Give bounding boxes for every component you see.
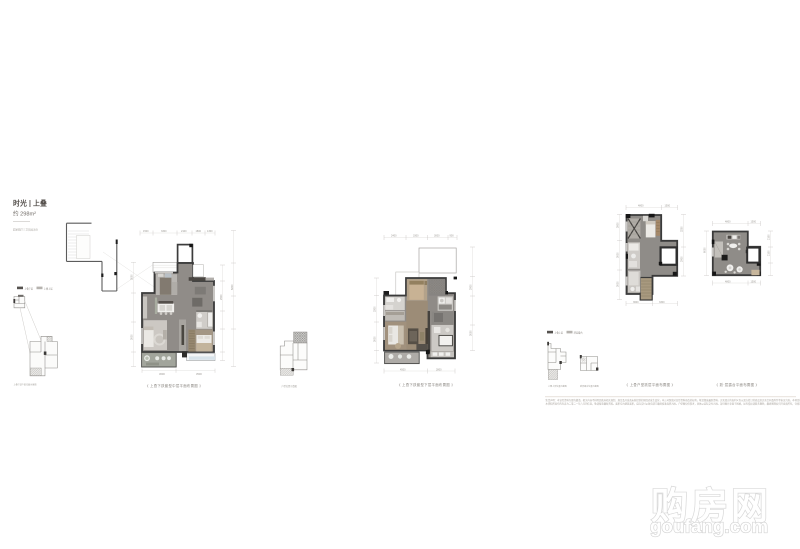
svg-text:约 298m²: 约 298m² bbox=[13, 210, 36, 218]
svg-text:3050: 3050 bbox=[131, 274, 134, 280]
svg-text:2800: 2800 bbox=[436, 368, 442, 371]
svg-text:3300: 3300 bbox=[374, 306, 377, 312]
svg-text:3050: 3050 bbox=[470, 330, 473, 336]
svg-text:《 上叠下跃套型中层平面布置图 》: 《 上叠下跃套型中层平面布置图 》 bbox=[145, 383, 203, 388]
svg-text:3300: 3300 bbox=[413, 235, 419, 238]
svg-text:1500: 1500 bbox=[751, 221, 757, 224]
svg-text:3500: 3500 bbox=[196, 372, 202, 376]
svg-text:3300: 3300 bbox=[161, 230, 167, 233]
svg-text:时光 | 上叠: 时光 | 上叠 bbox=[13, 199, 47, 208]
svg-text:3300: 3300 bbox=[659, 301, 665, 304]
svg-text:3000: 3000 bbox=[617, 252, 620, 258]
svg-text:2900: 2900 bbox=[681, 256, 684, 262]
svg-text:3600: 3600 bbox=[159, 372, 165, 376]
svg-text:《 上叠户型跃层平面布置图 》: 《 上叠户型跃层平面布置图 》 bbox=[625, 382, 675, 387]
svg-text:goufang.com: goufang.com bbox=[650, 516, 768, 537]
svg-text:2400: 2400 bbox=[391, 235, 397, 238]
svg-text:3000: 3000 bbox=[374, 336, 377, 342]
svg-text:3600: 3600 bbox=[633, 301, 639, 304]
svg-text:1300: 1300 bbox=[207, 230, 213, 233]
svg-text:4800: 4800 bbox=[638, 205, 644, 208]
svg-text:6050: 6050 bbox=[704, 247, 707, 253]
svg-text:四室两厅三卫花园洋房: 四室两厅三卫花园洋房 bbox=[13, 228, 39, 232]
svg-text:《 跃·层露台平面布置图 》: 《 跃·层露台平面布置图 》 bbox=[715, 382, 760, 387]
svg-text:《 上叠下跃套型下层平面布置图 》: 《 上叠下跃套型下层平面布置图 》 bbox=[397, 382, 455, 387]
svg-text:1800: 1800 bbox=[196, 230, 202, 233]
svg-text:900: 900 bbox=[450, 235, 455, 238]
svg-text:2600: 2600 bbox=[617, 222, 620, 228]
svg-text:3000: 3000 bbox=[131, 334, 134, 340]
svg-text:1500: 1500 bbox=[143, 230, 149, 233]
svg-text:4800: 4800 bbox=[725, 280, 731, 283]
svg-text:6200: 6200 bbox=[231, 284, 234, 290]
svg-text:1500: 1500 bbox=[751, 280, 757, 283]
svg-text:1500: 1500 bbox=[665, 205, 671, 208]
svg-text:2900: 2900 bbox=[470, 284, 473, 290]
svg-text:4500: 4500 bbox=[400, 368, 406, 371]
svg-text:3250: 3250 bbox=[681, 226, 684, 232]
svg-text:3000: 3000 bbox=[434, 235, 440, 238]
svg-text:2100: 2100 bbox=[181, 230, 187, 233]
svg-text:2150: 2150 bbox=[768, 250, 771, 256]
svg-text:2150: 2150 bbox=[768, 234, 771, 240]
svg-text:3000: 3000 bbox=[617, 281, 620, 287]
svg-text:2900: 2900 bbox=[220, 294, 223, 300]
svg-text:4800: 4800 bbox=[725, 221, 731, 224]
